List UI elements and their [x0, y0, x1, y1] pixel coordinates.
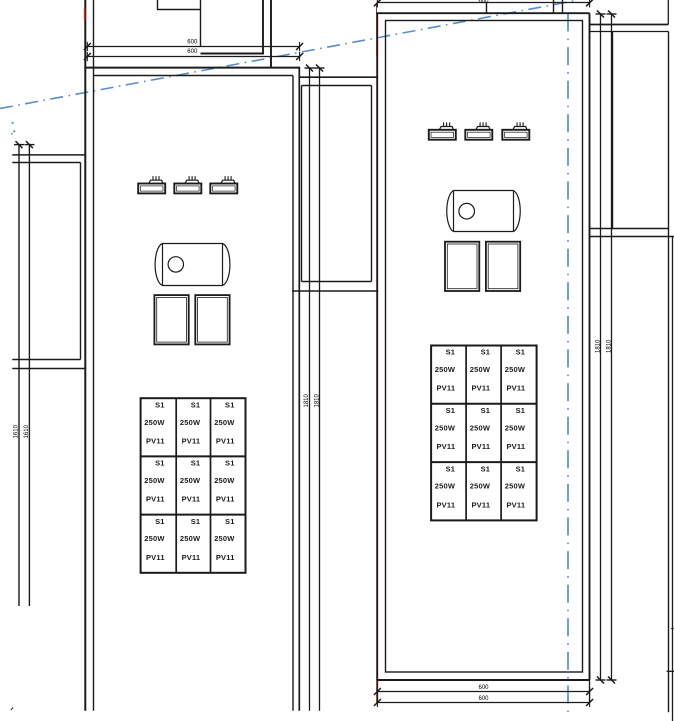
svg-text:PV11: PV11 — [471, 384, 490, 393]
svg-text:S1: S1 — [225, 517, 235, 526]
svg-text:S1: S1 — [155, 459, 165, 468]
svg-text:PV11: PV11 — [471, 500, 490, 509]
svg-text:S1: S1 — [225, 459, 235, 468]
svg-text:PV11: PV11 — [471, 442, 490, 451]
svg-text:PV11: PV11 — [182, 553, 201, 562]
svg-text:250W: 250W — [180, 476, 201, 485]
svg-text:600: 600 — [187, 40, 198, 46]
svg-text:PV11: PV11 — [146, 495, 165, 504]
svg-text:S1: S1 — [191, 517, 201, 526]
svg-text:250W: 250W — [214, 476, 235, 485]
svg-text:250W: 250W — [214, 418, 235, 427]
svg-text:250W: 250W — [435, 365, 456, 374]
svg-text:S1: S1 — [155, 517, 165, 526]
svg-text:S1: S1 — [446, 464, 456, 473]
svg-text:S1: S1 — [516, 464, 526, 473]
svg-text:250W: 250W — [470, 365, 491, 374]
svg-text:250W: 250W — [214, 534, 235, 543]
svg-text:PV11: PV11 — [506, 384, 525, 393]
svg-text:S1: S1 — [516, 348, 526, 357]
svg-text:S1: S1 — [481, 348, 491, 357]
svg-text:PV11: PV11 — [436, 384, 455, 393]
svg-text:600: 600 — [478, 696, 489, 702]
svg-text:PV11: PV11 — [436, 442, 455, 451]
svg-text:1810: 1810 — [596, 339, 602, 353]
svg-text:PV11: PV11 — [216, 436, 235, 445]
svg-text:S1: S1 — [191, 459, 201, 468]
svg-text:250W: 250W — [470, 482, 491, 491]
svg-text:PV11: PV11 — [146, 436, 165, 445]
svg-text:1810: 1810 — [304, 393, 310, 407]
svg-text:250W: 250W — [470, 423, 491, 432]
svg-text:250W: 250W — [144, 534, 165, 543]
svg-text:PV11: PV11 — [436, 500, 455, 509]
svg-text:PV11: PV11 — [182, 495, 201, 504]
svg-text:600: 600 — [478, 0, 489, 5]
svg-text:1610: 1610 — [14, 424, 20, 438]
svg-text:250W: 250W — [144, 476, 165, 485]
svg-text:S1: S1 — [155, 400, 165, 409]
svg-text:250W: 250W — [435, 482, 456, 491]
svg-text:S1: S1 — [225, 400, 235, 409]
svg-text:250W: 250W — [180, 418, 201, 427]
svg-text:PV11: PV11 — [506, 500, 525, 509]
svg-text:PV11: PV11 — [506, 442, 525, 451]
svg-text:S1: S1 — [191, 400, 201, 409]
svg-text:250W: 250W — [180, 534, 201, 543]
svg-text:PV11: PV11 — [216, 495, 235, 504]
svg-text:1810: 1810 — [315, 393, 321, 407]
svg-text:250W: 250W — [505, 365, 526, 374]
svg-text:PV11: PV11 — [216, 553, 235, 562]
svg-text:S1: S1 — [481, 464, 491, 473]
svg-text:250W: 250W — [505, 482, 526, 491]
svg-text:S1: S1 — [516, 406, 526, 415]
svg-text:600: 600 — [478, 685, 489, 691]
svg-text:250W: 250W — [144, 418, 165, 427]
svg-text:S1: S1 — [446, 348, 456, 357]
svg-text:S1: S1 — [446, 406, 456, 415]
svg-text:1610: 1610 — [24, 424, 30, 438]
svg-text:600: 600 — [187, 49, 198, 55]
svg-text:250W: 250W — [505, 423, 526, 432]
svg-text:1810: 1810 — [607, 339, 613, 353]
svg-text:PV11: PV11 — [146, 553, 165, 562]
svg-text:S1: S1 — [481, 406, 491, 415]
svg-text:PV11: PV11 — [182, 436, 201, 445]
svg-text:250W: 250W — [435, 423, 456, 432]
